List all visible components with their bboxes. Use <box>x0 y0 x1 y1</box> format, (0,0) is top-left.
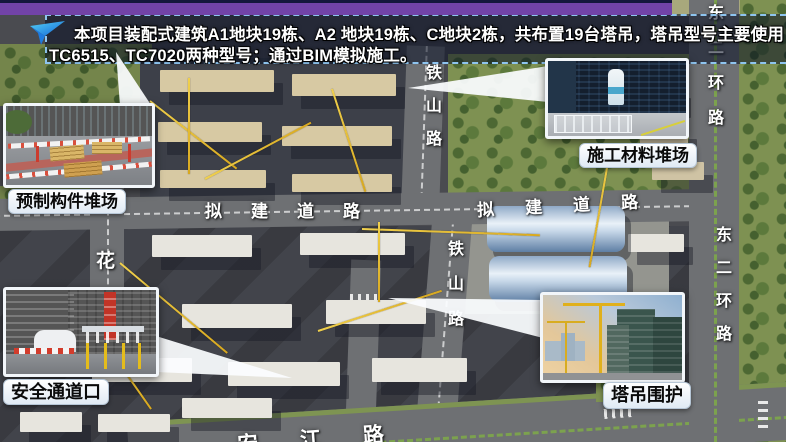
bim-site-overview: 拟建道路 拟建道路 铁山路 铁山路 东二环路 东二环路 花 安江路 本项目装配式… <box>0 0 786 442</box>
callout-label-material-yard: 施工材料堆场 <box>579 143 697 168</box>
inset-photo-crane-enclosure <box>540 292 685 383</box>
paper-plane-icon <box>29 20 67 47</box>
building-block <box>292 74 396 96</box>
inset-photo-safety-passage <box>3 287 159 377</box>
road-label-tieshan-north: 铁山路 <box>419 64 443 163</box>
road-label-nijian-west: 拟建道路 <box>205 197 389 222</box>
road-label-dongerhuan-south: 东二环路 <box>709 226 733 358</box>
crosswalk <box>758 400 768 428</box>
callout-label-safety-passage: 安全通道口 <box>3 379 109 405</box>
callout-label-crane-enclosure: 塔吊围护 <box>603 382 691 409</box>
road-label-hua: 花 <box>96 246 115 273</box>
crane-line <box>378 222 380 302</box>
building-block <box>372 358 467 382</box>
building-block <box>182 304 292 328</box>
building-block <box>228 362 340 386</box>
callout-label-prefab-yard: 预制构件堆场 <box>8 189 126 214</box>
inset-photo-prefab-yard <box>3 103 155 188</box>
inset-photo-material-yard <box>545 58 689 139</box>
top-purple-bar <box>0 3 672 15</box>
building-block <box>152 235 252 257</box>
road-label-tieshan-south: 铁山路 <box>441 240 465 345</box>
building-block <box>160 70 274 92</box>
building-block <box>292 174 392 192</box>
crane-line <box>188 78 190 174</box>
building-block <box>158 122 262 142</box>
building-block <box>300 233 405 255</box>
forest-right-strip <box>738 0 786 442</box>
building-block <box>20 412 82 432</box>
building-block <box>98 414 170 432</box>
banner-line2: TC6515、TC7020两种型号；通过BIM模拟施工。 <box>49 42 417 66</box>
building-block <box>182 398 272 418</box>
building-block <box>628 234 684 252</box>
